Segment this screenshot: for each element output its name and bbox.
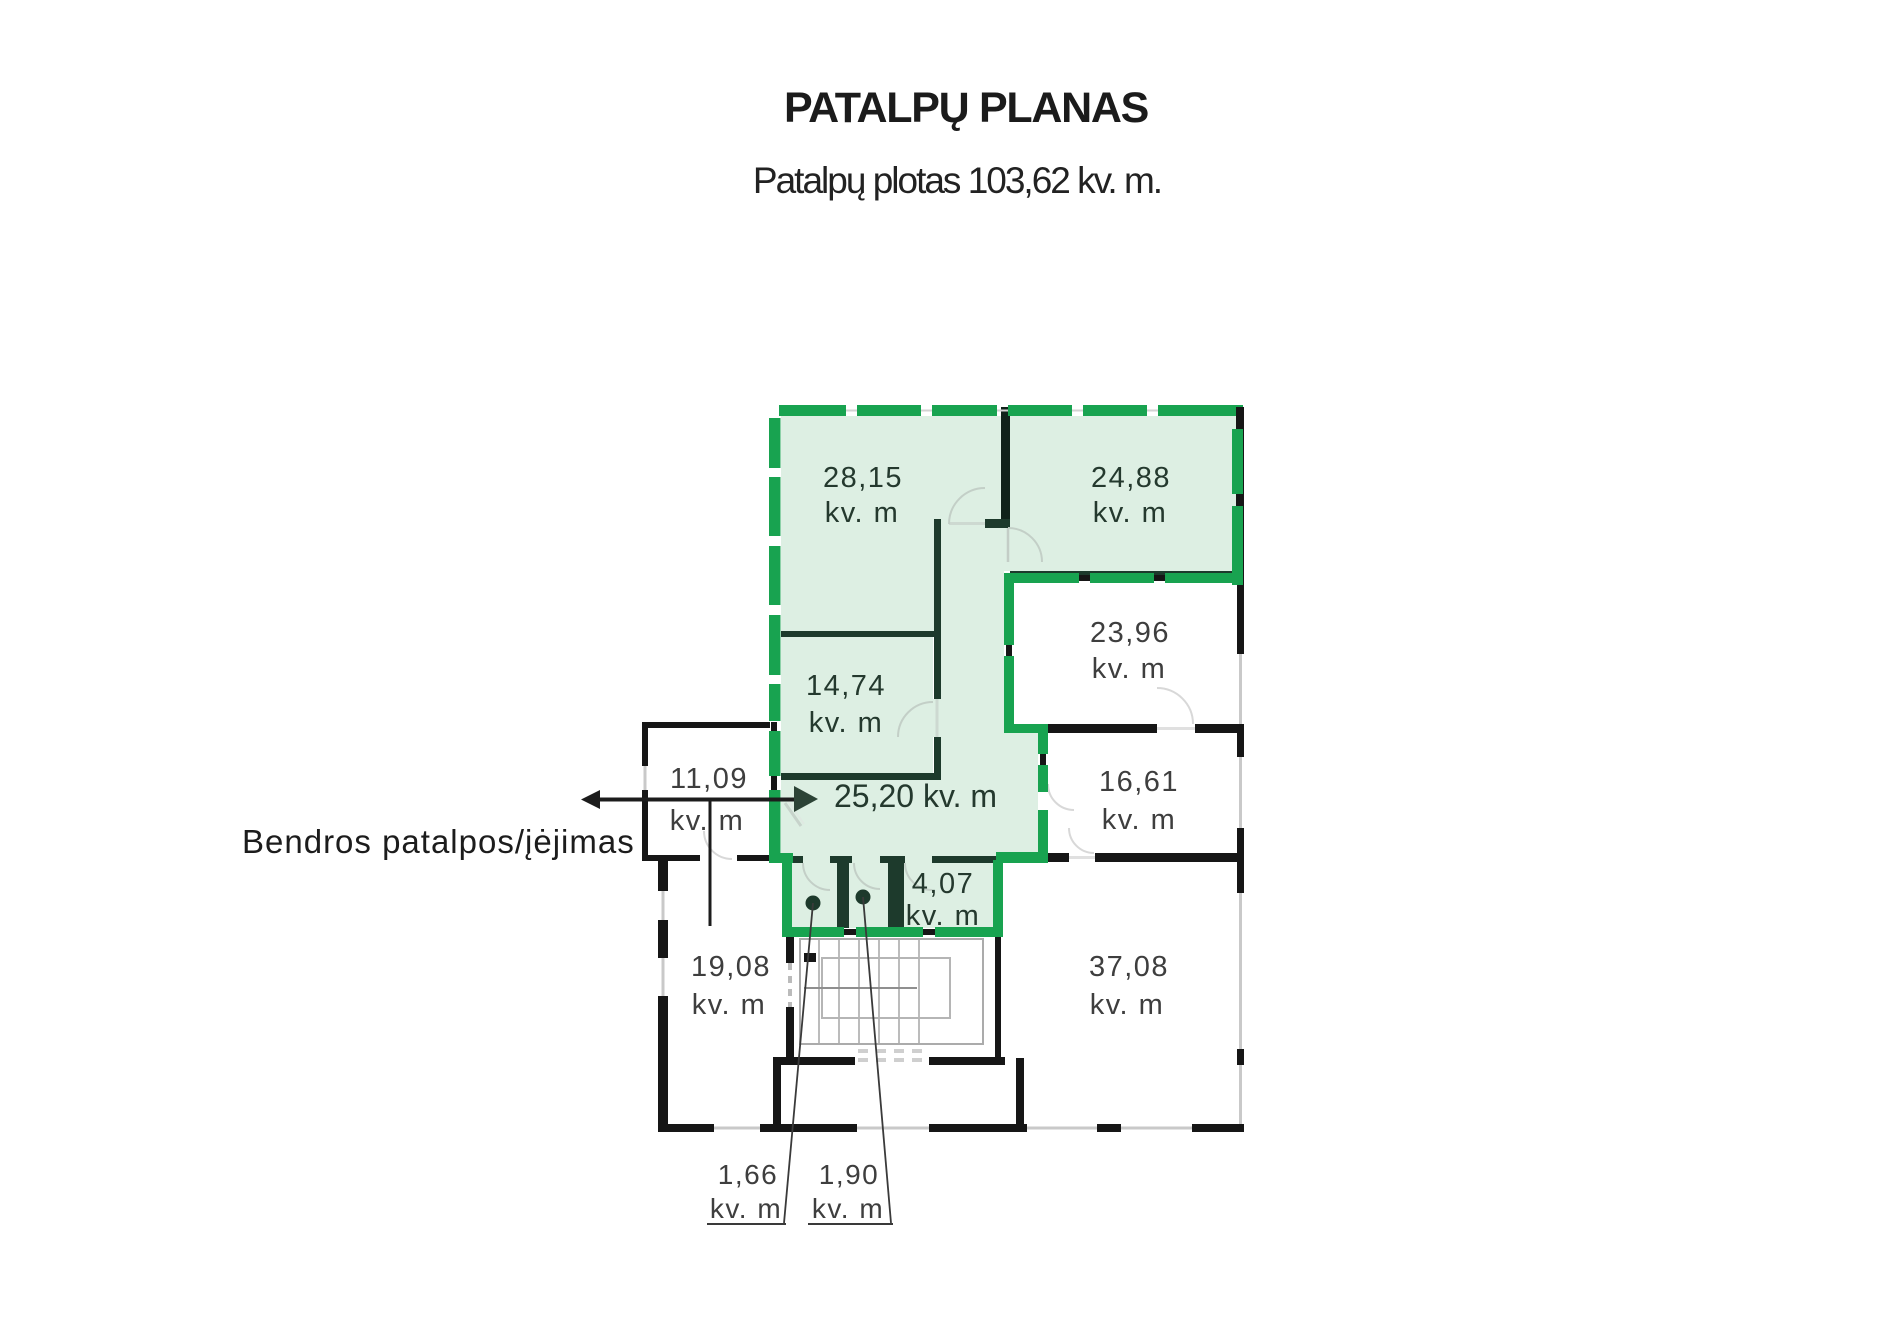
svg-text:14,74: 14,74: [806, 670, 886, 702]
svg-text:kv. m: kv. m: [906, 900, 981, 932]
svg-text:4,07: 4,07: [912, 868, 974, 900]
svg-text:25,20 kv. m: 25,20 kv. m: [834, 778, 997, 814]
svg-text:kv. m: kv. m: [1090, 989, 1165, 1021]
svg-text:28,15: 28,15: [823, 462, 903, 494]
svg-text:kv. m: kv. m: [809, 707, 884, 739]
svg-text:37,08: 37,08: [1089, 951, 1169, 983]
svg-text:kv. m: kv. m: [812, 1193, 884, 1224]
svg-text:24,88: 24,88: [1091, 462, 1171, 494]
svg-text:Bendros patalpos/įėjimas: Bendros patalpos/įėjimas: [242, 823, 635, 860]
svg-text:Patalpų plotas 103,62 kv. m.: Patalpų plotas 103,62 kv. m.: [753, 160, 1161, 201]
svg-text:kv. m: kv. m: [1093, 497, 1168, 529]
svg-text:kv. m: kv. m: [710, 1193, 782, 1224]
svg-text:16,61: 16,61: [1099, 766, 1179, 798]
svg-text:11,09: 11,09: [670, 763, 748, 795]
svg-text:kv. m: kv. m: [1102, 804, 1177, 836]
svg-text:PATALPŲ PLANAS: PATALPŲ PLANAS: [784, 84, 1148, 132]
svg-text:kv. m: kv. m: [1092, 653, 1167, 685]
svg-text:1,90: 1,90: [819, 1159, 880, 1190]
svg-text:kv. m: kv. m: [670, 805, 745, 837]
svg-text:1,66: 1,66: [718, 1159, 779, 1190]
svg-text:kv. m: kv. m: [692, 989, 767, 1021]
svg-text:kv. m: kv. m: [825, 497, 900, 529]
svg-text:23,96: 23,96: [1090, 617, 1170, 649]
svg-text:19,08: 19,08: [691, 951, 771, 983]
